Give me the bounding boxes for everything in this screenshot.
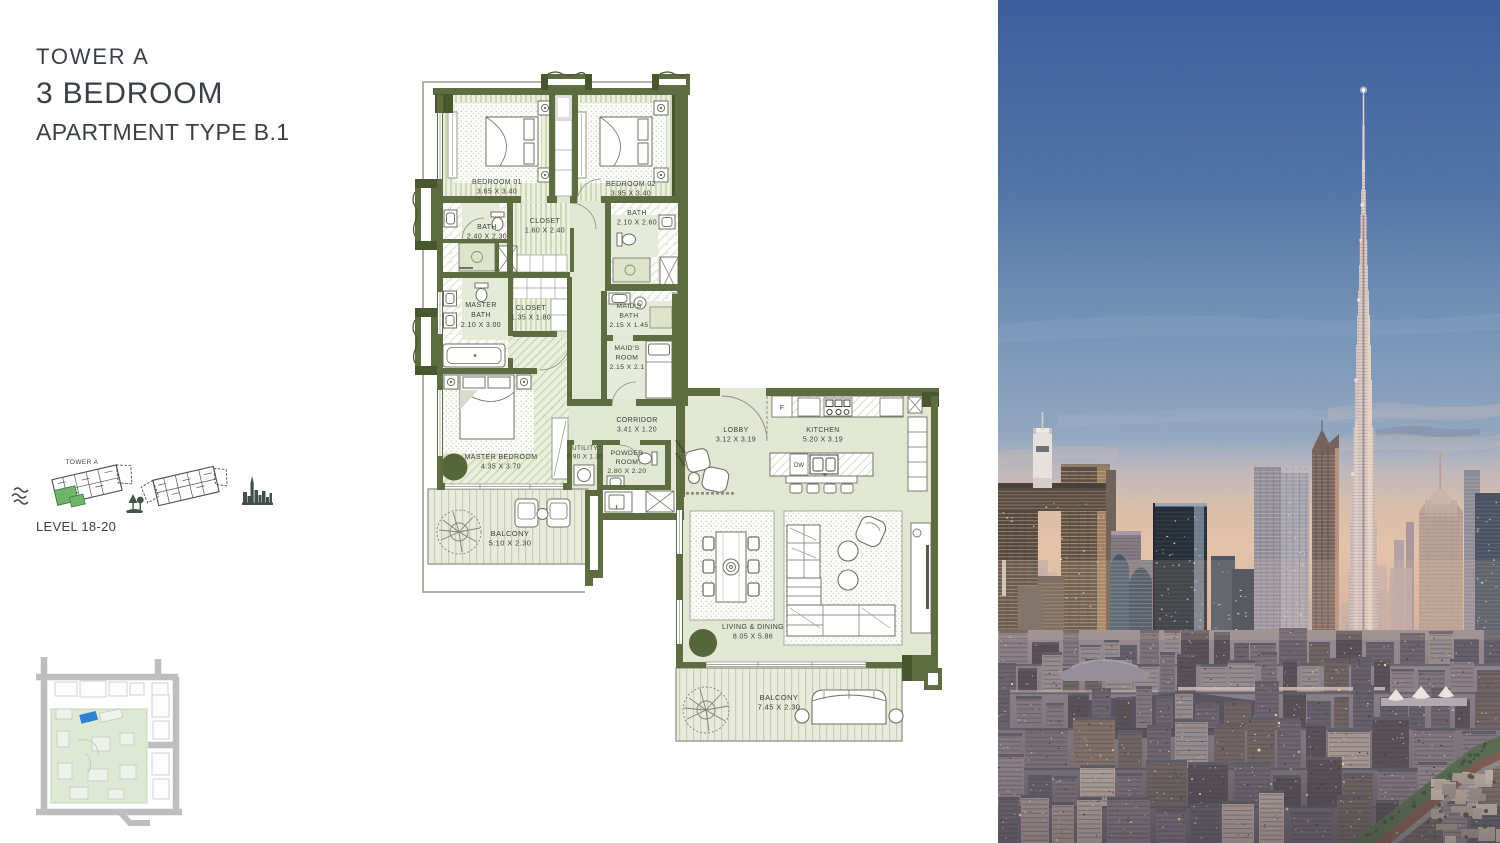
- svg-text:1.60 X 2.40: 1.60 X 2.40: [525, 228, 565, 235]
- svg-text:2.10 X 2.60: 2.10 X 2.60: [617, 220, 657, 227]
- svg-text:4.35 X 3.70: 4.35 X 3.70: [481, 464, 521, 471]
- svg-text:BALCONY: BALCONY: [491, 529, 530, 538]
- svg-text:BATH: BATH: [627, 210, 647, 217]
- svg-text:ROOM: ROOM: [616, 459, 639, 466]
- svg-text:3.41 X 1.20: 3.41 X 1.20: [617, 427, 657, 434]
- svg-text:BEDROOM 01: BEDROOM 01: [472, 179, 522, 186]
- svg-text:3.65 X 3.40: 3.65 X 3.40: [477, 189, 517, 196]
- svg-text:8.05 X 5.86: 8.05 X 5.86: [733, 634, 773, 641]
- svg-text:MASTER: MASTER: [465, 302, 497, 309]
- svg-text:2.80 X 2.20: 2.80 X 2.20: [607, 468, 646, 475]
- svg-text:UTILITY: UTILITY: [572, 445, 598, 452]
- svg-text:CLOSET: CLOSET: [516, 305, 547, 312]
- svg-text:DW: DW: [794, 463, 804, 469]
- svg-text:LOBBY: LOBBY: [723, 427, 748, 434]
- svg-text:LIVING & DINING: LIVING & DINING: [722, 624, 784, 631]
- svg-text:KITCHEN: KITCHEN: [806, 427, 840, 434]
- svg-text:7.45 X 2.30: 7.45 X 2.30: [758, 703, 801, 712]
- svg-text:3.12 X 3.19: 3.12 X 3.19: [716, 437, 756, 444]
- svg-text:MASTER BEDROOM: MASTER BEDROOM: [465, 454, 538, 461]
- svg-text:3.95 X 3.40: 3.95 X 3.40: [611, 191, 651, 198]
- svg-text:CORRIDOR: CORRIDOR: [616, 417, 657, 424]
- svg-text:2.15 X 1.45: 2.15 X 1.45: [609, 322, 648, 329]
- svg-text:MAID'S: MAID'S: [614, 345, 639, 352]
- svg-text:ROOM: ROOM: [616, 355, 639, 362]
- svg-text:5.20 X 3.19: 5.20 X 3.19: [803, 437, 843, 444]
- svg-text:BEDROOM 02: BEDROOM 02: [606, 181, 656, 188]
- svg-text:MAID'S: MAID'S: [616, 303, 641, 310]
- svg-text:POWDER: POWDER: [611, 450, 644, 457]
- svg-text:BATH: BATH: [477, 224, 497, 231]
- svg-text:2.10 X 3.00: 2.10 X 3.00: [461, 322, 501, 329]
- svg-text:BALCONY: BALCONY: [760, 693, 799, 702]
- svg-text:2.15 X 2.1: 2.15 X 2.1: [610, 364, 645, 371]
- svg-text:CLOSET: CLOSET: [530, 218, 561, 225]
- svg-text:1.35 X 1.80: 1.35 X 1.80: [511, 315, 551, 322]
- svg-text:2.40 X 2.30: 2.40 X 2.30: [467, 234, 507, 241]
- svg-text:0.90 X 1.30: 0.90 X 1.30: [567, 454, 603, 461]
- svg-text:BATH: BATH: [471, 312, 491, 319]
- svg-text:5.10 X 2.30: 5.10 X 2.30: [489, 539, 532, 548]
- svg-text:BATH: BATH: [619, 313, 638, 320]
- svg-text:F: F: [780, 405, 784, 412]
